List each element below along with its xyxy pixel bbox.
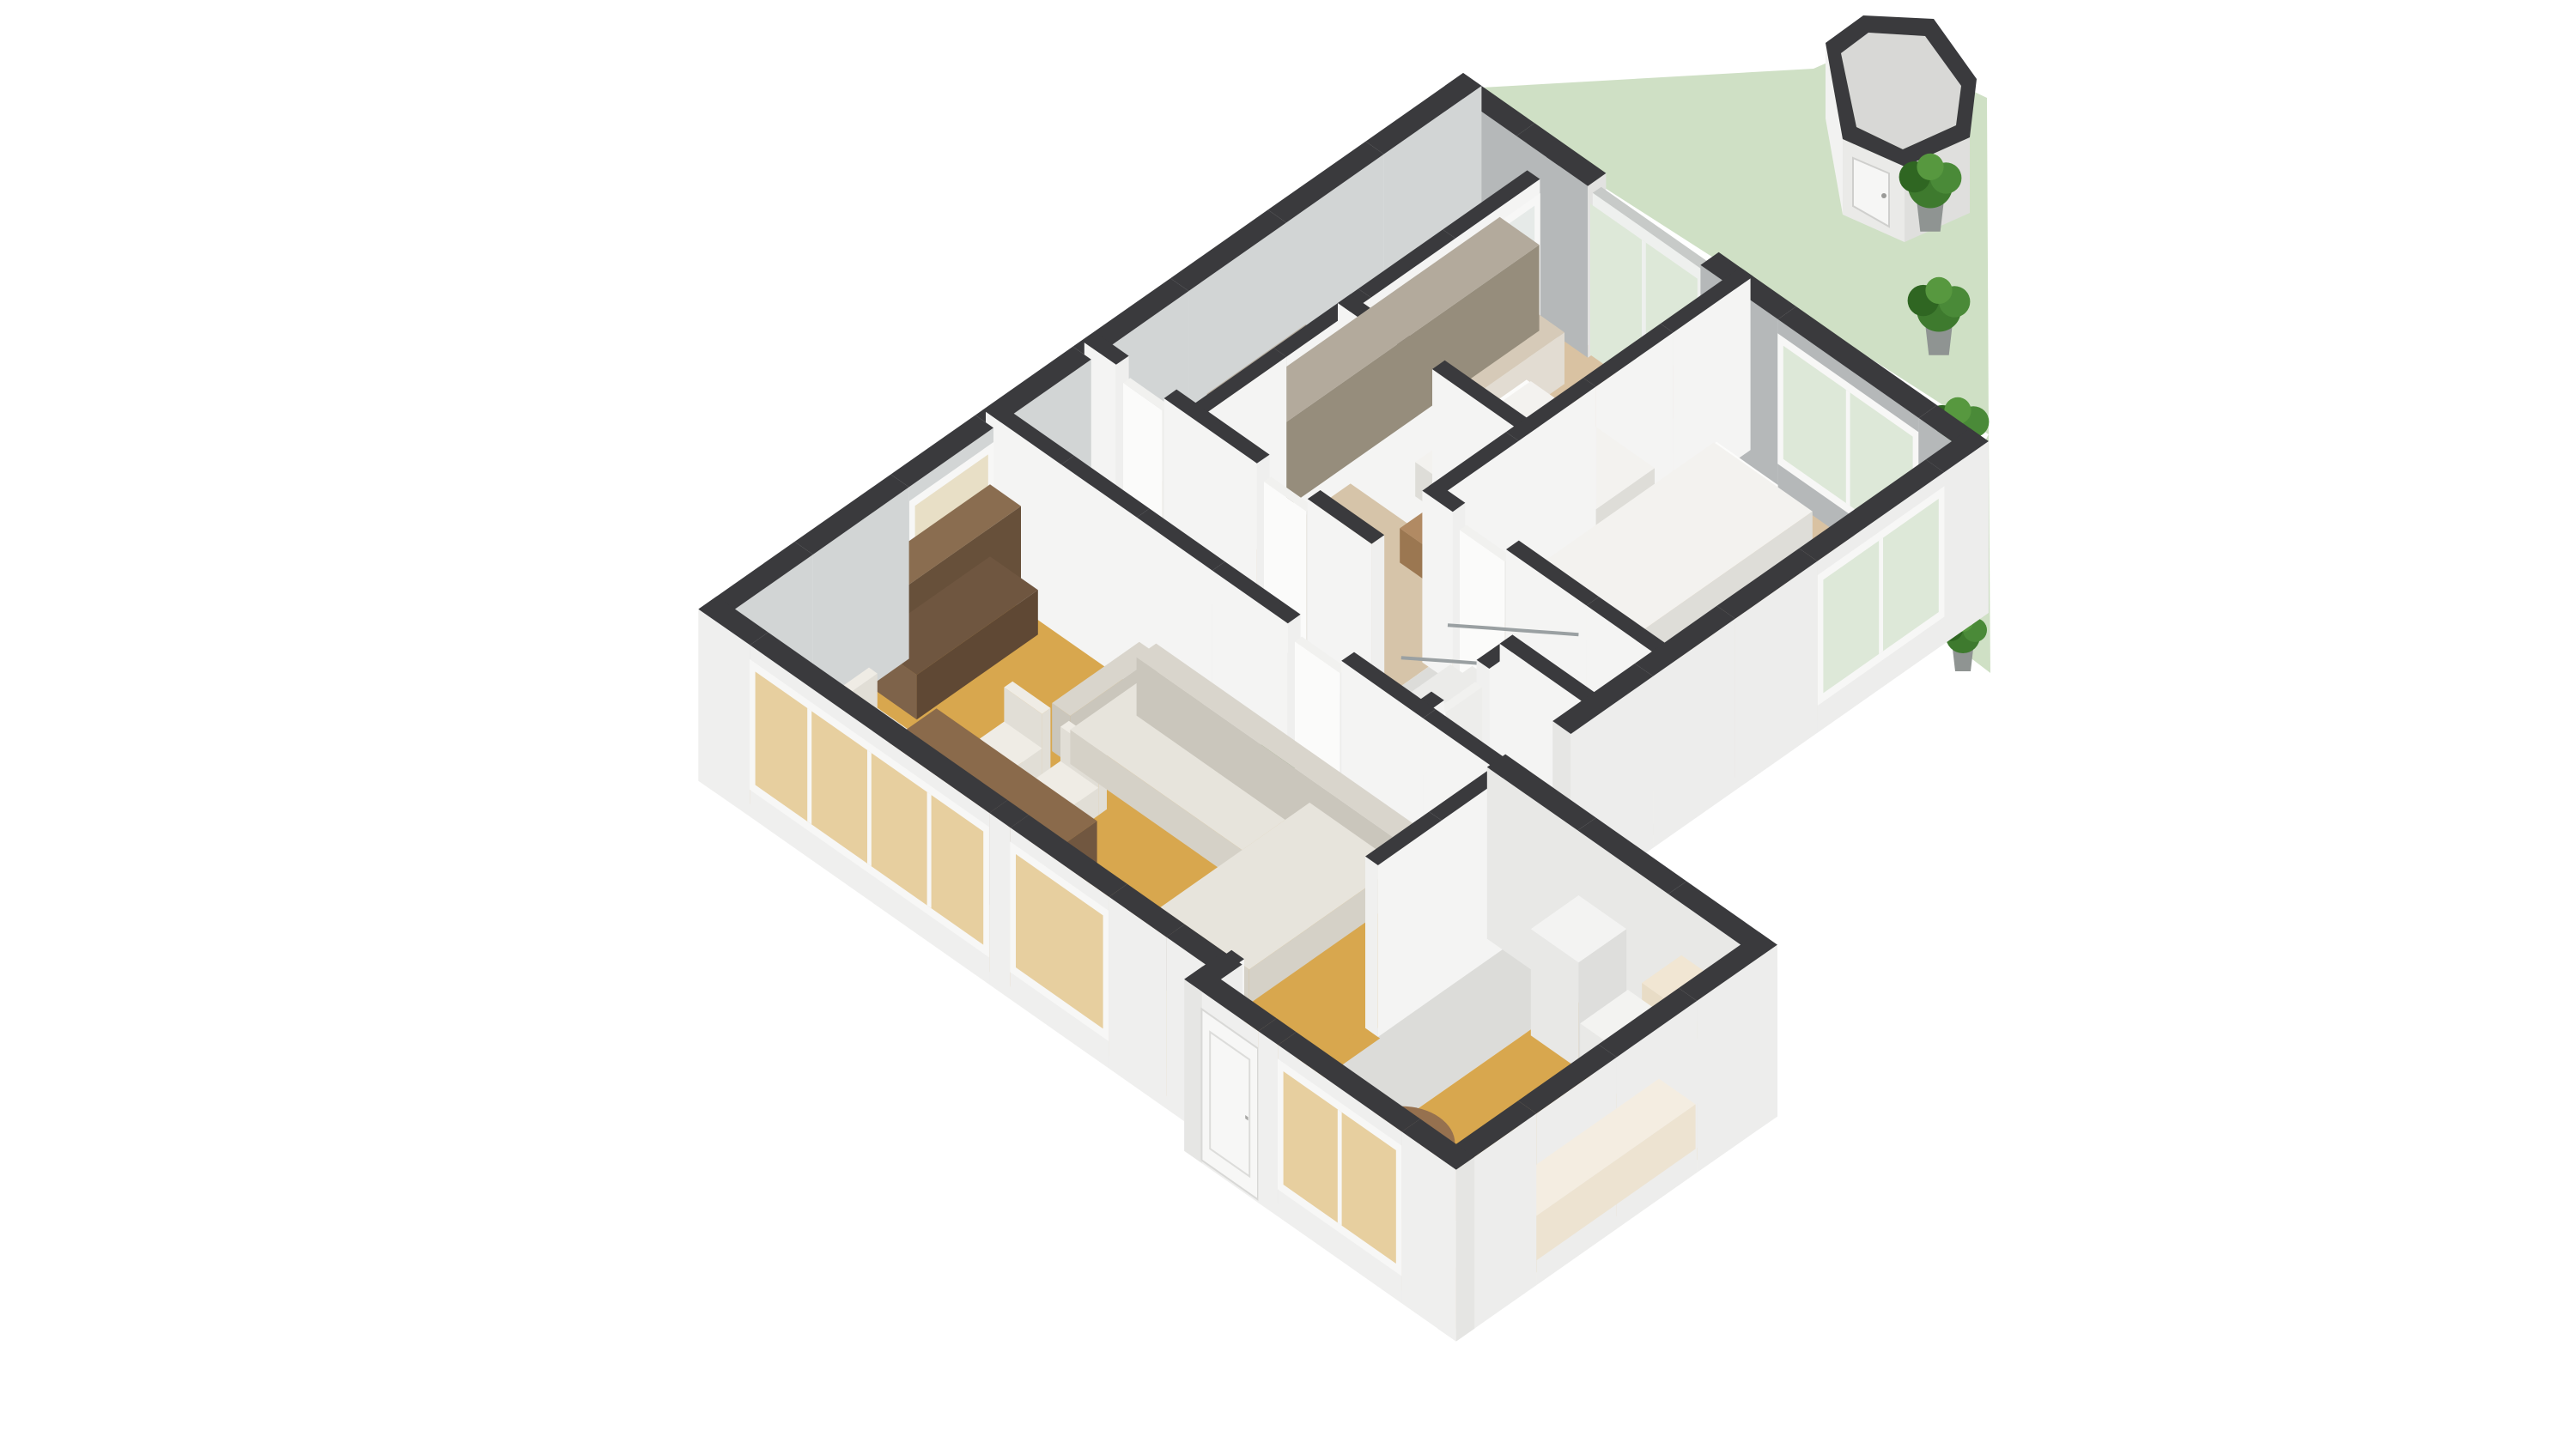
garden-shed — [1826, 15, 1977, 242]
floor-plan-3d — [0, 0, 2576, 1449]
wall-bedroom2-south — [1422, 482, 1465, 683]
wall-sw-kitchen — [1402, 1119, 1475, 1341]
floor-plan-canvas — [0, 0, 2576, 1449]
